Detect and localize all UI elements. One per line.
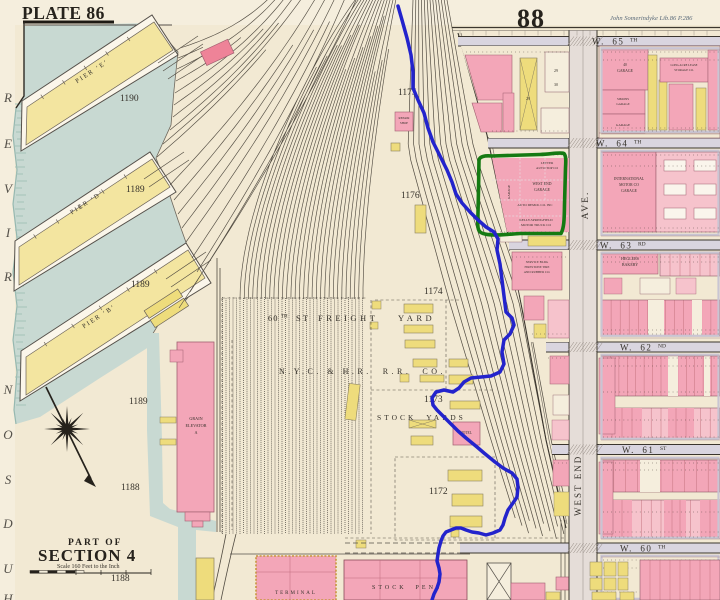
svg-text:1189: 1189 — [129, 397, 148, 407]
svg-text:W. 60: W. 60 — [620, 544, 652, 554]
svg-text:D: D — [2, 516, 13, 531]
svg-text:W. 61: W. 61 — [622, 445, 654, 455]
svg-text:N: N — [3, 382, 14, 397]
svg-text:SERVICE BLDG: SERVICE BLDG — [526, 260, 549, 264]
svg-text:GARAGE: GARAGE — [621, 189, 638, 193]
svg-text:LONG ACRE LEASE: LONG ACRE LEASE — [671, 63, 698, 67]
svg-text:GARAGE: GARAGE — [507, 185, 511, 199]
svg-text:TH: TH — [634, 140, 641, 146]
svg-text:R: R — [3, 90, 12, 105]
svg-text:AVE.: AVE. — [581, 191, 591, 220]
svg-text:ST: ST — [660, 446, 667, 452]
svg-text:TERMINAL: TERMINAL — [275, 591, 317, 596]
svg-text:KELLY-SPRINGFIELD: KELLY-SPRINGFIELD — [519, 218, 553, 222]
svg-text:GARAGE: GARAGE — [616, 123, 630, 127]
svg-text:MOTOR TRUCK CO: MOTOR TRUCK CO — [521, 223, 552, 227]
svg-text:MOTOR CO: MOTOR CO — [619, 183, 639, 187]
svg-text:30: 30 — [554, 82, 558, 87]
svg-text:TH: TH — [658, 545, 665, 551]
svg-text:FIRESTONE TIRE: FIRESTONE TIRE — [525, 265, 550, 269]
svg-text:O: O — [3, 427, 13, 442]
svg-text:PLATE 86: PLATE 86 — [22, 3, 105, 23]
svg-text:N.Y.C. & H.R. R.R. CO.: N.Y.C. & H.R. R.R. CO. — [279, 367, 446, 376]
svg-text:W. 62: W. 62 — [620, 343, 652, 353]
svg-text:TH: TH — [281, 315, 288, 320]
svg-text:W. 64: W. 64 — [596, 139, 628, 149]
svg-text:1189: 1189 — [126, 185, 145, 195]
svg-text:I: I — [5, 225, 11, 240]
svg-text:1176: 1176 — [401, 191, 420, 201]
svg-text:FREIGHT: FREIGHT — [318, 313, 378, 323]
svg-text:SECTION 4: SECTION 4 — [38, 546, 136, 565]
svg-text:YARD: YARD — [398, 313, 435, 323]
svg-text:40: 40 — [623, 63, 627, 67]
svg-text:ELEVATOR: ELEVATOR — [185, 423, 206, 428]
svg-text:88: 88 — [517, 4, 545, 33]
svg-text:BAKERY: BAKERY — [622, 262, 638, 267]
svg-text:Scale 160 Feet to the Inch: Scale 160 Feet to the Inch — [57, 564, 119, 570]
svg-text:E: E — [3, 136, 12, 151]
svg-text:RD: RD — [638, 242, 646, 248]
svg-text:INTERNATIONAL: INTERNATIONAL — [614, 177, 645, 181]
svg-text:John Somerindyke Lib.86 P.286: John Somerindyke Lib.86 P.286 — [610, 15, 693, 22]
svg-text:W. 63: W. 63 — [600, 241, 632, 251]
svg-text:AUTO DEMOL CO. INC: AUTO DEMOL CO. INC — [517, 203, 553, 207]
svg-text:1188: 1188 — [111, 574, 130, 584]
svg-text:SHOP: SHOP — [400, 121, 408, 125]
svg-text:GARAGE: GARAGE — [616, 102, 629, 106]
svg-text:ND: ND — [658, 344, 666, 350]
svg-text:R: R — [3, 269, 12, 284]
svg-text:H: H — [2, 591, 13, 600]
svg-text:LETTER: LETTER — [541, 161, 554, 165]
svg-text:1172: 1172 — [429, 487, 448, 497]
svg-text:GARAGE: GARAGE — [617, 69, 634, 73]
svg-text:1174: 1174 — [424, 287, 443, 297]
svg-text:ST: ST — [296, 313, 310, 323]
svg-text:SIMONS: SIMONS — [617, 97, 629, 101]
svg-text:A: A — [194, 430, 197, 435]
svg-text:STORAGE CO.: STORAGE CO. — [674, 68, 694, 72]
svg-text:AND RUBBER CO.: AND RUBBER CO. — [524, 270, 551, 274]
svg-text:U: U — [3, 561, 14, 576]
svg-text:STOCK YARDS: STOCK YARDS — [377, 413, 466, 422]
svg-text:AUTO TOP CO: AUTO TOP CO — [536, 166, 558, 170]
svg-text:1188: 1188 — [121, 483, 140, 493]
svg-text:WEST END: WEST END — [573, 455, 583, 516]
svg-text:S: S — [5, 472, 12, 487]
svg-text:29: 29 — [526, 96, 530, 101]
svg-text:60: 60 — [268, 313, 279, 323]
svg-text:GARAGE: GARAGE — [534, 188, 551, 192]
svg-text:GRAIN: GRAIN — [189, 416, 202, 421]
svg-text:WEST END: WEST END — [532, 182, 551, 186]
svg-text:TH: TH — [630, 38, 637, 44]
svg-text:29: 29 — [554, 68, 558, 73]
svg-text:1190: 1190 — [120, 94, 139, 104]
svg-text:W. 65: W. 65 — [592, 37, 624, 47]
svg-text:REPAIR: REPAIR — [398, 116, 410, 120]
svg-text:STOCK PENS: STOCK PENS — [372, 585, 442, 591]
svg-text:1189: 1189 — [131, 280, 150, 290]
